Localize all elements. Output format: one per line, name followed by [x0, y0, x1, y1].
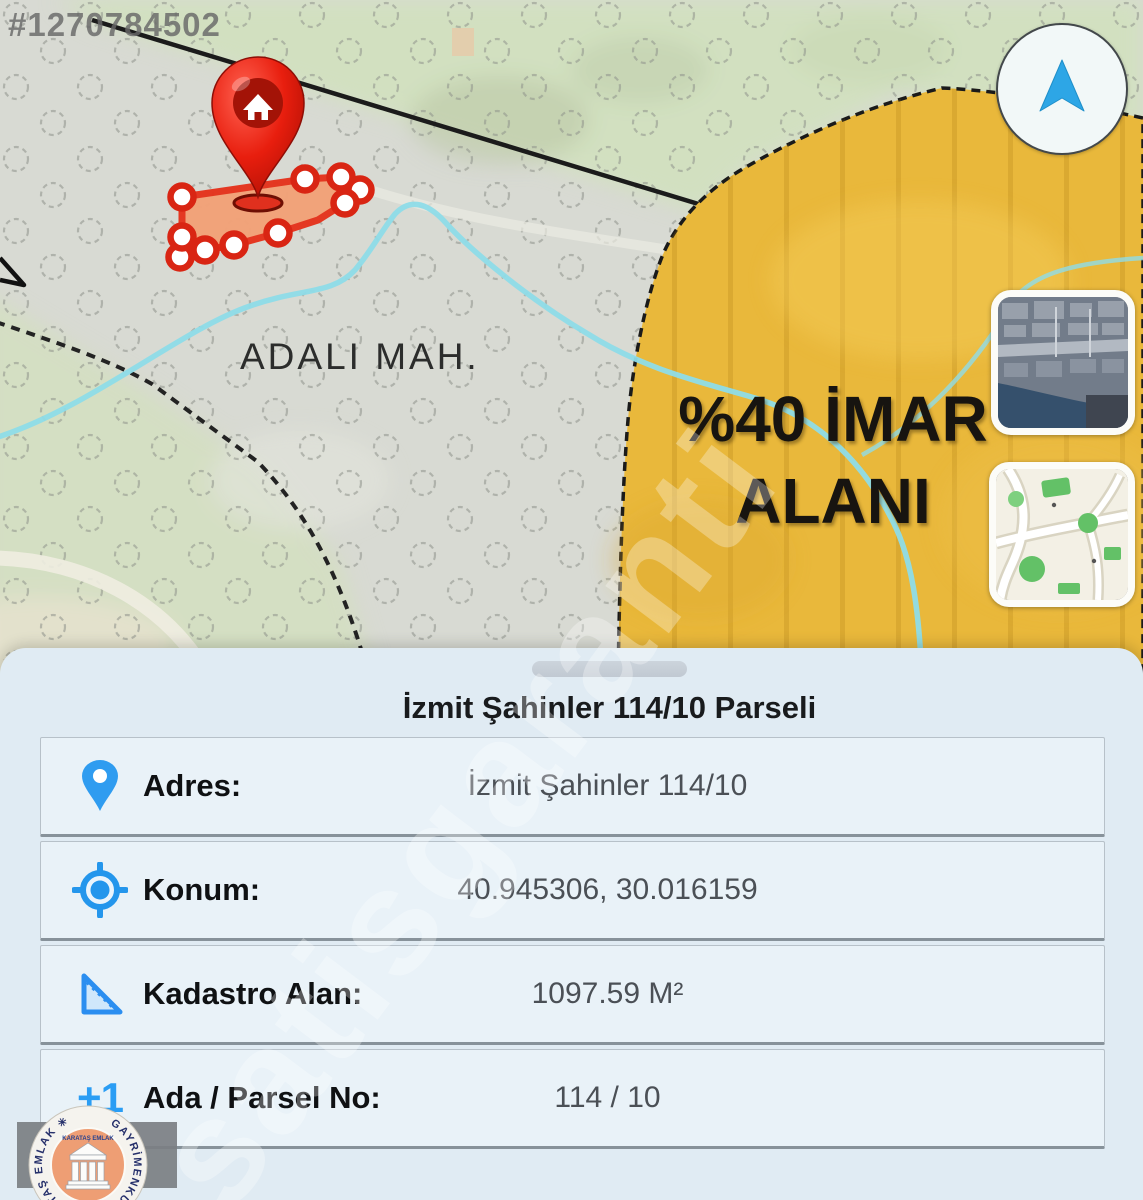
- satellite-thumbnail-art: [998, 297, 1128, 428]
- satellite-view-thumbnail[interactable]: [991, 290, 1135, 435]
- row-value: İzmit Şahinler 114/10: [301, 769, 914, 803]
- street-map-thumbnail-art: [996, 469, 1128, 600]
- info-rows: Adres: İzmit Şahinler 114/10 Konum: 40.: [40, 737, 1105, 1153]
- info-bottom-sheet: İzmit Şahinler 114/10 Parseli Adres: İzm…: [0, 648, 1143, 1200]
- row-kadastro-alan: Kadastro Alan: 1097.59 M²: [40, 945, 1105, 1045]
- parcel-title: İzmit Şahinler 114/10 Parseli: [0, 690, 1143, 726]
- zone-label-line1: %40 İMAR: [648, 378, 1018, 460]
- agency-logo-badge: GAYRİMENKUL ✳ KARATAŞ EMLAK ✳ KARATAŞ EM…: [26, 1103, 150, 1200]
- map-canvas[interactable]: #1270784502 ADALI MAH. %40 İMAR ALANI: [0, 0, 1143, 680]
- district-label: ADALI MAH.: [240, 336, 480, 378]
- logo-center-text: KARATAŞ EMLAK: [62, 1136, 114, 1142]
- row-value: 1097.59 M²: [301, 977, 914, 1011]
- photo-id-watermark: #1270784502: [8, 6, 221, 44]
- row-konum: Konum: 40.945306, 30.016159: [40, 841, 1105, 941]
- zone-label-line2: ALANI: [648, 460, 1018, 542]
- row-label: Konum:: [143, 872, 260, 908]
- row-label: Adres:: [143, 768, 241, 804]
- sheet-drag-handle[interactable]: [532, 661, 687, 677]
- row-value: 40.945306, 30.016159: [301, 873, 914, 907]
- location-pin-icon: [71, 760, 129, 812]
- map-base-art: [0, 0, 1143, 680]
- gps-target-icon: [71, 862, 129, 918]
- row-ada-parsel: +1 Ada / Parsel No: 114 / 10: [40, 1049, 1105, 1149]
- row-value: 114 / 10: [301, 1081, 914, 1115]
- zone-label: %40 İMAR ALANI: [648, 378, 1018, 542]
- app-screenshot: #1270784502 ADALI MAH. %40 İMAR ALANI: [0, 0, 1143, 1200]
- set-square-icon: [71, 970, 129, 1018]
- street-map-thumbnail[interactable]: [989, 462, 1135, 607]
- row-adres: Adres: İzmit Şahinler 114/10: [40, 737, 1105, 837]
- compass-button[interactable]: [996, 23, 1128, 155]
- navigation-arrow-icon: [1026, 53, 1098, 125]
